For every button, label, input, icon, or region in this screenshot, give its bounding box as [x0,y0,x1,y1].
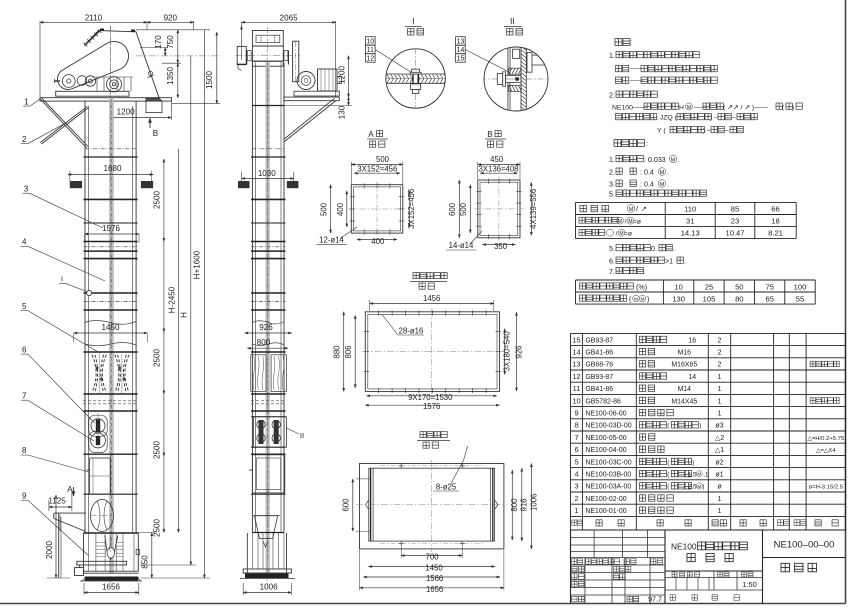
svg-text:806: 806 [344,346,353,359]
svg-text:GB41-86: GB41-86 [585,350,613,357]
svg-text:3X152=456: 3X152=456 [407,189,416,229]
svg-text:4: 4 [574,470,578,479]
svg-text:25: 25 [705,282,713,291]
svg-text:31: 31 [686,217,694,226]
svg-text:1: 1 [718,410,722,418]
svg-text:2: 2 [718,336,722,344]
svg-text:6: 6 [574,445,578,454]
svg-text:NE100-05-00: NE100-05-00 [585,435,626,442]
svg-text:NE100: NE100 [671,542,697,552]
svg-text:926: 926 [514,346,523,359]
svg-text:1030: 1030 [258,169,276,178]
svg-text:M: M [629,207,634,213]
svg-text:M: M [618,219,622,225]
svg-text:5.: 5. [609,245,615,253]
svg-text:1.: 1. [609,156,615,164]
svg-text:: JZQ (: : JZQ ( [656,115,678,122]
svg-text:M14: M14 [678,386,692,393]
svg-text:920: 920 [164,13,178,22]
svg-text:1: 1 [718,373,722,381]
svg-text:NE100——: NE100—— [612,105,647,112]
svg-text:4: 4 [22,238,27,247]
svg-text:.: . [678,156,680,164]
svg-text:): ) [702,484,704,491]
svg-text:△=△X4: △=△X4 [816,448,836,454]
svg-text:1680: 1680 [104,164,122,173]
svg-text:7.: 7. [609,268,615,276]
svg-text:M: M [619,231,623,237]
svg-text:500: 500 [319,202,328,216]
svg-text:△2: △2 [715,434,724,442]
svg-text:16: 16 [688,337,696,344]
svg-text:M: M [697,472,701,477]
svg-text:.: . [673,245,675,253]
svg-text:50: 50 [735,282,743,291]
svg-text:1: 1 [718,495,722,503]
svg-text:2.5: 2.5 [688,484,697,491]
svg-text:M: M [660,170,665,176]
svg-text:M16: M16 [678,350,692,357]
svg-text:12-ø14: 12-ø14 [319,236,344,245]
svg-text:): ) [792,105,794,112]
svg-text:4X139=556: 4X139=556 [529,189,538,229]
svg-text:23: 23 [731,217,739,226]
svg-text:1656: 1656 [426,585,443,594]
svg-text:2500: 2500 [153,441,162,459]
svg-text:5: 5 [22,302,27,311]
svg-text:: 0.4: : 0.4 [640,169,654,177]
svg-text:) –: ) – [710,115,718,122]
svg-text:1576: 1576 [102,224,120,233]
svg-text:( ↗↗ / ↗ )——: ( ↗↗ / ↗ )—— [723,105,768,112]
svg-text:1450: 1450 [102,323,120,332]
svg-text:850: 850 [140,555,149,569]
svg-text:: 0.4: : 0.4 [640,181,654,189]
svg-text:2: 2 [718,361,722,369]
svg-text:Y (: Y ( [657,128,666,135]
svg-text:105: 105 [703,295,716,304]
svg-text:1:50: 1:50 [742,580,756,589]
svg-text:600: 600 [448,202,457,216]
svg-text:1200: 1200 [337,66,346,84]
svg-text:I: I [412,16,414,26]
svg-text:△1: △1 [715,446,724,454]
svg-text:2500: 2500 [153,191,162,209]
svg-text:>1: >1 [665,258,673,266]
svg-text:): ) [692,459,694,466]
svg-text:/: / [636,206,638,214]
svg-text:H+1600: H+1600 [192,250,201,279]
svg-text:△=H/0.2+5.75: △=H/0.2+5.75 [807,436,845,442]
svg-text:(%): (%) [636,284,647,292]
svg-text:916: 916 [520,499,529,512]
svg-text:7: 7 [574,433,578,442]
svg-text:500: 500 [376,155,390,164]
svg-text:14.13: 14.13 [681,229,700,238]
svg-text:8.21: 8.21 [768,229,783,238]
svg-text:1006: 1006 [260,583,278,592]
svg-text:–: – [732,115,736,122]
svg-text:80: 80 [735,295,743,304]
svg-text:450: 450 [490,155,504,164]
svg-text:2500: 2500 [153,519,162,537]
svg-text:75: 75 [765,282,773,291]
svg-text:): ) [699,423,701,430]
svg-text:12: 12 [572,372,580,381]
svg-text:15: 15 [456,54,464,62]
svg-text:2: 2 [22,135,27,144]
svg-text:): ) [647,296,649,304]
svg-text:H: H [180,312,189,318]
svg-text:.: . [684,258,686,266]
svg-text:3X136=408: 3X136=408 [478,164,518,173]
svg-text:10.47: 10.47 [725,229,744,238]
svg-text:1.5: 1.5 [688,472,697,479]
svg-text:3X180=540: 3X180=540 [503,331,512,372]
svg-text:1456: 1456 [423,294,440,303]
svg-text:ø3: ø3 [715,422,723,430]
svg-text:GB93-87: GB93-87 [585,374,613,381]
svg-text:130: 130 [337,105,346,119]
svg-text:10: 10 [674,282,682,291]
svg-text:NE100-03B-00: NE100-03B-00 [585,472,631,479]
svg-text::: : [646,139,648,148]
svg-text:926: 926 [259,323,273,332]
svg-text:10: 10 [572,396,580,405]
svg-text:/: / [616,231,618,238]
svg-text:2110: 2110 [85,13,103,22]
svg-text:1: 1 [574,506,578,515]
svg-text:7: 7 [22,391,27,400]
svg-text:ø=H-3.15/2.5: ø=H-3.15/2.5 [809,485,844,491]
svg-text:NE100-01-00: NE100-01-00 [585,508,626,515]
svg-text:1006: 1006 [529,494,538,511]
svg-text:NE100–00–00: NE100–00–00 [774,540,835,551]
svg-text:800: 800 [257,338,271,347]
svg-text:15: 15 [572,335,580,344]
svg-text:M14X45: M14X45 [671,398,697,405]
svg-text:9: 9 [22,491,27,500]
svg-text:M: M [687,105,691,111]
svg-text:3: 3 [574,482,578,491]
svg-text:750: 750 [166,35,175,49]
svg-text:600: 600 [342,498,351,512]
svg-text:=ø: =ø [624,231,632,238]
svg-text:M: M [660,182,665,188]
svg-text:2: 2 [718,349,722,357]
svg-text:GB41-86: GB41-86 [585,386,613,393]
svg-text:ø: ø [717,483,722,491]
svg-text:M: M [641,297,645,303]
svg-text::: : [643,268,645,276]
svg-text:97.7: 97.7 [648,595,662,603]
svg-text:↗: ↗ [641,205,647,213]
svg-text:A: A [368,130,374,139]
svg-text:170: 170 [154,35,163,49]
svg-text:NE100-03A-00: NE100-03A-00 [585,484,631,491]
svg-text:12: 12 [366,54,374,62]
svg-text:GB93-87: GB93-87 [585,337,613,344]
svg-text:NE100-04-00: NE100-04-00 [585,447,626,454]
svg-text:1576: 1576 [423,402,440,411]
svg-text:6: 6 [22,345,27,354]
svg-text:2.: 2. [609,92,615,100]
svg-text:65: 65 [765,295,773,304]
svg-text:B: B [487,130,492,139]
svg-text:1566: 1566 [426,574,443,583]
svg-text:800: 800 [510,498,519,512]
svg-text:,1: ,1 [703,472,709,479]
svg-text:1: 1 [718,507,722,515]
svg-text:1125: 1125 [48,497,66,506]
svg-text:.: . [667,169,669,177]
svg-text:M: M [697,484,701,489]
svg-text:13: 13 [572,360,580,369]
svg-text:II: II [300,431,304,440]
svg-text:NE100-06-00: NE100-06-00 [585,411,626,418]
svg-text:–: – [725,128,729,135]
svg-text::: : [630,38,632,47]
svg-text:.: . [667,181,669,189]
svg-text:=ø: =ø [633,219,641,226]
svg-text:ø1: ø1 [715,471,723,479]
svg-text:66: 66 [771,205,779,214]
svg-text:1450: 1450 [425,564,443,573]
svg-text:1: 1 [24,97,29,106]
svg-text:13: 13 [456,37,464,45]
svg-text:1350: 1350 [166,67,175,85]
svg-text:5.: 5. [609,191,615,199]
svg-text:400: 400 [336,202,345,216]
svg-text:2.: 2. [609,169,615,177]
svg-text:II: II [510,16,515,26]
svg-text:H: H [679,105,684,112]
svg-text:110: 110 [684,205,696,214]
svg-text:350: 350 [494,242,508,251]
svg-text:400: 400 [371,237,385,246]
svg-text:1: 1 [718,385,722,393]
svg-text:NE100-03D-00: NE100-03D-00 [585,423,631,430]
svg-text:14: 14 [572,348,580,357]
svg-text:6.: 6. [609,258,615,266]
svg-text:55: 55 [796,295,804,304]
svg-text:500: 500 [459,202,468,216]
svg-text:85: 85 [731,205,739,214]
svg-text:700: 700 [426,553,440,562]
svg-text:ø2: ø2 [715,458,723,466]
svg-text:11: 11 [573,384,581,393]
svg-text:NE100-02-00: NE100-02-00 [585,496,626,503]
svg-text:2000: 2000 [45,541,54,559]
svg-text:/: / [625,219,627,226]
svg-text:130: 130 [672,295,685,304]
svg-text:10: 10 [366,37,374,45]
svg-text:14: 14 [456,46,464,54]
svg-text:18: 18 [771,217,779,226]
svg-text:——: —— [694,105,708,112]
svg-text:14-ø14: 14-ø14 [449,241,474,250]
svg-text:B: B [153,129,158,138]
svg-text:1.: 1. [609,52,615,60]
svg-text:3X152=456: 3X152=456 [357,164,397,173]
svg-text:I: I [61,276,63,284]
svg-text:NE100-03C-00: NE100-03C-00 [585,459,631,466]
svg-text:8-ø25: 8-ø25 [436,483,456,492]
svg-text:11: 11 [367,46,374,54]
svg-text:2: 2 [574,494,578,503]
svg-text:880: 880 [333,345,342,359]
svg-text:8: 8 [22,446,27,455]
svg-text:H-2450: H-2450 [167,286,176,313]
svg-text:0.: 0. [651,245,657,253]
svg-text:2500: 2500 [153,349,162,367]
svg-text:100: 100 [794,282,807,291]
svg-text:9: 9 [574,409,578,418]
svg-text:1656: 1656 [102,583,120,592]
svg-text:: 0.033: : 0.033 [644,156,666,164]
svg-text:28-ø16: 28-ø16 [399,327,424,336]
svg-text:3.: 3. [609,181,615,189]
svg-text:3: 3 [24,184,29,193]
svg-text:2065: 2065 [280,13,298,22]
svg-text:1500: 1500 [205,71,214,89]
svg-text:GB5782-86: GB5782-86 [585,398,621,405]
svg-text:M: M [671,158,676,164]
svg-text:M16X65: M16X65 [671,362,697,369]
svg-text:1: 1 [718,397,722,405]
svg-text:——: —— [630,77,644,84]
svg-text:M: M [628,219,632,225]
svg-text:) –: ) – [703,128,711,135]
svg-text:GB68-76: GB68-76 [585,362,613,369]
svg-text:5: 5 [574,457,578,466]
svg-text:14: 14 [688,374,696,381]
svg-text:M: M [634,297,638,303]
svg-text:8: 8 [574,421,578,430]
svg-text:9X170=1530: 9X170=1530 [408,393,453,402]
